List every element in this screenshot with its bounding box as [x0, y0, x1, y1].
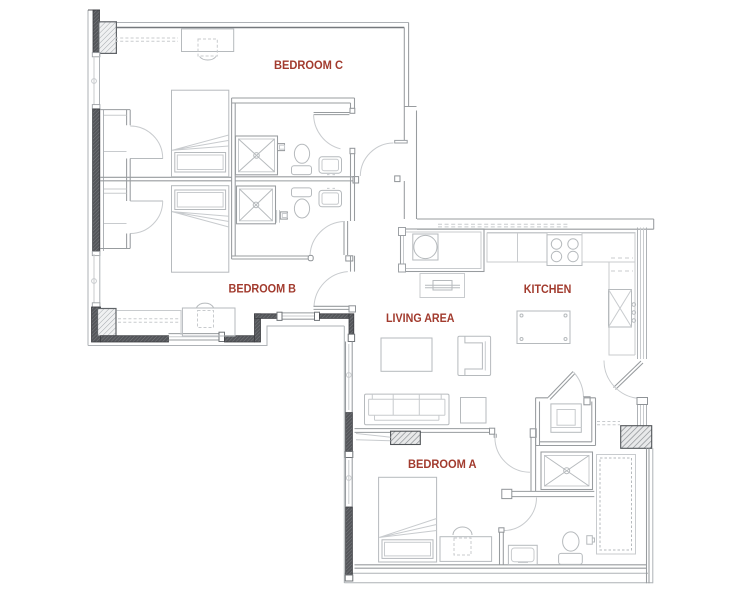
svg-text:BEDROOM C: BEDROOM C	[274, 58, 343, 72]
svg-text:BEDROOM A: BEDROOM A	[408, 457, 477, 471]
svg-text:BEDROOM B: BEDROOM B	[229, 281, 297, 295]
svg-text:LIVING AREA: LIVING AREA	[386, 311, 455, 325]
svg-text:KITCHEN: KITCHEN	[524, 282, 572, 296]
